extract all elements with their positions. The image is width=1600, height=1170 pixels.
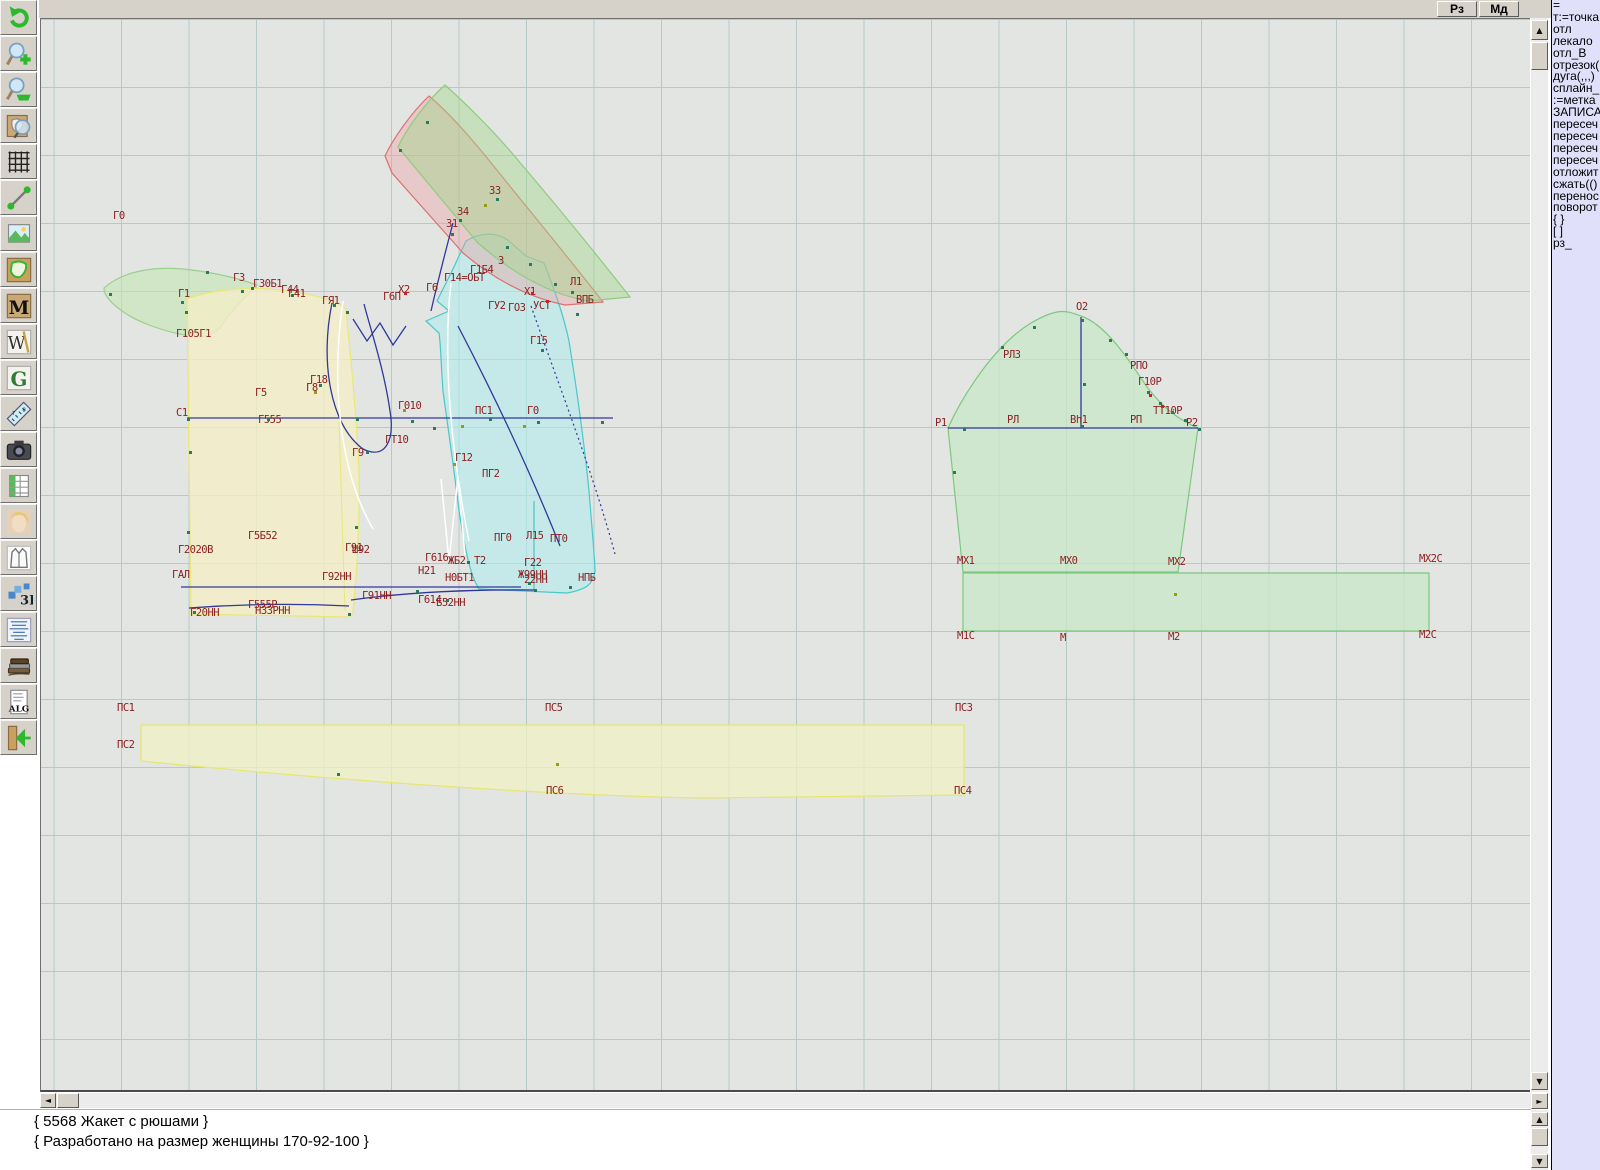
point-marker	[1198, 428, 1201, 431]
point-marker	[189, 451, 192, 454]
point-marker	[356, 418, 359, 421]
point-label: НЗЗРНН	[255, 605, 290, 617]
scroll-down-button[interactable]: ▼	[1531, 1072, 1548, 1090]
zoom-in-button[interactable]	[0, 36, 37, 71]
text-list-icon	[5, 616, 33, 644]
point-marker	[489, 418, 492, 421]
point-marker	[1149, 394, 1152, 397]
point-marker	[1171, 411, 1174, 414]
point-label: Т2	[474, 555, 486, 567]
point-label: ПГ0	[494, 532, 511, 544]
point-label: ГАЛ	[172, 569, 189, 581]
point-marker	[461, 425, 464, 428]
point-label: О2	[1076, 301, 1088, 313]
hscroll-thumb[interactable]	[57, 1093, 79, 1108]
portrait-button[interactable]	[0, 504, 37, 539]
camera-icon	[5, 436, 33, 464]
point-marker	[333, 304, 336, 307]
point-label: З3	[489, 185, 501, 197]
point-label: МХ1	[957, 555, 974, 567]
point-label: Г010	[398, 400, 421, 412]
point-marker	[433, 427, 436, 430]
mode-button-rz[interactable]: Рз	[1437, 1, 1477, 17]
undo-button[interactable]	[0, 0, 37, 35]
g-letter-icon: G	[5, 364, 33, 392]
point-label: Г30Б1	[253, 278, 282, 290]
point-marker	[601, 421, 604, 424]
svg-text:W: W	[7, 334, 25, 354]
point-marker	[319, 384, 322, 387]
point-marker	[554, 283, 557, 286]
point-marker	[953, 471, 956, 474]
point-label: Г0	[113, 210, 125, 222]
point-marker	[556, 763, 559, 766]
console-line: { Разработано на размер женщины 170-92-1…	[0, 1133, 1531, 1150]
zoom-out-button[interactable]	[0, 72, 37, 107]
point-marker	[1083, 383, 1086, 386]
point-label: Г1	[178, 288, 190, 300]
svg-text:3D: 3D	[20, 593, 33, 608]
point-marker	[267, 418, 270, 421]
m-letter-button[interactable]: M	[0, 288, 37, 323]
svg-text:G: G	[10, 367, 27, 391]
point-label: ПС5	[545, 702, 562, 714]
zoom-out-icon	[5, 76, 33, 104]
point-marker	[1109, 339, 1112, 342]
canvas-vscrollbar[interactable]: ▲ ▼	[1531, 18, 1548, 1092]
g-letter-button[interactable]: G	[0, 360, 37, 395]
console-scroll-up-button[interactable]: ▲	[1531, 1112, 1548, 1126]
point-label: Р2	[1186, 417, 1198, 429]
top-bar: Рз Мд	[39, 0, 1551, 18]
zoom-piece-button[interactable]	[0, 108, 37, 143]
image-button[interactable]	[0, 216, 37, 251]
point-label: Г6	[426, 282, 438, 294]
point-label: ПС4	[954, 785, 971, 797]
pattern-piece-button[interactable]	[0, 252, 37, 287]
point-marker	[523, 425, 526, 428]
point-label: ГУ2	[488, 300, 505, 312]
point-label: М1С	[957, 630, 974, 642]
point-label: МХ2	[1168, 556, 1185, 568]
point-label: Г5	[255, 387, 267, 399]
alg-doc-icon: ALG	[5, 688, 33, 716]
point-label: ЖБ2	[448, 555, 465, 567]
point-marker	[251, 287, 254, 290]
point-label: ПС1	[117, 702, 134, 714]
scroll-right-button[interactable]: ►	[1531, 1093, 1548, 1109]
toolbar: MWG783DALG	[0, 0, 39, 1170]
console-scrollbar[interactable]: ▲ ▼	[1531, 1110, 1548, 1170]
point-label: ПС3	[955, 702, 972, 714]
point-label: Г616	[425, 552, 448, 564]
point-label: ГО3	[508, 302, 525, 314]
point-marker	[459, 219, 462, 222]
drawing-canvas[interactable]: Г0Г1Г3Г30Б1Г44Г41ГЯ1Г105Г1Г18Г8Г5С1Г555З…	[40, 18, 1530, 1092]
point-marker	[528, 582, 531, 585]
point-label: Н0БТ1	[445, 572, 474, 584]
point-marker	[411, 420, 414, 423]
console-line: { 5568 Жакет с рюшами }	[0, 1113, 1531, 1130]
point-label: НПБ	[578, 572, 595, 584]
point-marker	[569, 586, 572, 589]
point-marker	[337, 773, 340, 776]
point-label: ПТ0	[550, 533, 567, 545]
console-scroll-down-button[interactable]: ▼	[1531, 1154, 1548, 1168]
point-label: Ш92	[352, 544, 369, 556]
point-marker	[355, 526, 358, 529]
point-label: МХ0	[1060, 555, 1077, 567]
point-label: Г91НН	[362, 590, 391, 602]
ruler-icon: 78	[5, 400, 33, 428]
point-label: М2С	[1419, 629, 1436, 641]
pattern-piece-icon	[5, 256, 33, 284]
point-marker	[314, 391, 317, 394]
point-label: РПО	[1130, 360, 1147, 372]
point-marker	[1161, 405, 1164, 408]
point-label: ГЯ1	[322, 295, 339, 307]
point-label: РЛЗ	[1003, 349, 1020, 361]
point-marker	[467, 561, 470, 564]
point-marker	[206, 271, 209, 274]
pattern-cad-window: MWG783DALG Рз Мд	[0, 0, 1600, 1170]
point-label: ГТ10	[385, 434, 408, 446]
point-marker	[366, 451, 369, 454]
spreadsheet-icon	[5, 472, 33, 500]
point-marker	[1184, 419, 1187, 422]
point-marker	[496, 198, 499, 201]
point-label: ПГ2	[482, 468, 499, 480]
program-console[interactable]: { 5568 Жакет с рюшами } { Разработано на…	[0, 1109, 1531, 1170]
svg-text:ALG: ALG	[7, 704, 28, 714]
console-scroll-thumb[interactable]	[1531, 1128, 1548, 1146]
undo-icon	[5, 4, 33, 32]
piece-front-bodice	[187, 288, 359, 617]
point-marker	[531, 292, 534, 295]
point-label: З1	[446, 218, 458, 230]
point-marker	[185, 311, 188, 314]
point-marker	[348, 613, 351, 616]
point-marker	[963, 428, 966, 431]
point-label: МХ2С	[1419, 553, 1442, 565]
point-marker	[193, 611, 196, 614]
point-marker	[1033, 326, 1036, 329]
ruler-button[interactable]: 78	[0, 396, 37, 431]
point-label: Н21	[418, 565, 435, 577]
point-label: С1	[176, 407, 188, 419]
point-label: ПС6	[546, 785, 563, 797]
command-list-item[interactable]: рз_	[1552, 238, 1600, 250]
point-marker	[453, 463, 456, 466]
point-label: Г9	[352, 447, 364, 459]
point-label: Л15	[526, 530, 543, 542]
exit-button[interactable]	[0, 720, 37, 755]
garment-sketch-button[interactable]	[0, 540, 37, 575]
alg-doc-button[interactable]: ALG	[0, 684, 37, 719]
image-icon	[5, 220, 33, 248]
point-marker	[571, 291, 574, 294]
portrait-icon	[5, 508, 33, 536]
point-label: ТТ10Р	[1153, 405, 1182, 417]
point-marker	[403, 409, 406, 412]
point-marker	[181, 301, 184, 304]
point-label: Г6П	[383, 291, 400, 303]
point-marker	[109, 293, 112, 296]
point-marker	[416, 590, 419, 593]
scroll-left-button[interactable]: ◄	[40, 1093, 56, 1108]
m-letter-icon: M	[5, 292, 33, 320]
mode-button-md[interactable]: Мд	[1479, 1, 1519, 17]
point-marker	[291, 294, 294, 297]
point-label: З4	[457, 206, 469, 218]
measure-line-button[interactable]	[0, 180, 37, 215]
point-label: Г5Б52	[248, 530, 277, 542]
point-marker	[1125, 353, 1128, 356]
command-panel[interactable]: =т:=точкаотллекалоотл_Вотрезок(дуга(,,,)…	[1551, 0, 1600, 1170]
text-list-button[interactable]	[0, 612, 37, 647]
point-label: Р1	[935, 417, 947, 429]
books-icon	[5, 652, 33, 680]
books-button[interactable]	[0, 648, 37, 683]
point-label: Вh1	[1070, 414, 1087, 426]
point-marker	[241, 290, 244, 293]
point-label: Г1Б4	[470, 264, 493, 276]
point-marker	[534, 589, 537, 592]
point-marker	[484, 204, 487, 207]
svg-text:8: 8	[22, 407, 25, 413]
point-marker	[426, 121, 429, 124]
point-marker	[541, 349, 544, 352]
point-label: Б52НН	[436, 597, 465, 609]
point-marker	[1174, 593, 1177, 596]
point-marker	[399, 149, 402, 152]
point-marker	[346, 311, 349, 314]
measure-line-icon	[5, 184, 33, 212]
spreadsheet-button[interactable]	[0, 468, 37, 503]
point-marker	[529, 263, 532, 266]
zoom-in-icon	[5, 40, 33, 68]
svg-text:7: 7	[12, 411, 15, 417]
threed-icon: 3D	[5, 580, 33, 608]
point-marker	[506, 246, 509, 249]
point-marker	[187, 418, 190, 421]
grid-button[interactable]	[0, 144, 37, 179]
piece-sleeve	[948, 312, 1198, 572]
point-label: Г22	[524, 557, 541, 569]
point-marker	[576, 313, 579, 316]
grid-icon	[5, 148, 33, 176]
point-label: Г2020В	[178, 544, 213, 556]
canvas-hscrollbar[interactable]: ◄	[40, 1093, 1531, 1108]
exit-icon	[5, 724, 33, 752]
point-marker	[404, 292, 407, 295]
point-label: М2	[1168, 631, 1180, 643]
scroll-up-button[interactable]: ▲	[1531, 20, 1548, 40]
point-label: ПС1	[475, 405, 492, 417]
point-label: Г0	[527, 405, 539, 417]
w-compass-button[interactable]: W	[0, 324, 37, 359]
point-label: Г15	[530, 335, 547, 347]
threed-button[interactable]: 3D	[0, 576, 37, 611]
point-label: Л1	[570, 276, 582, 288]
point-marker	[446, 599, 449, 602]
point-label: РП	[1130, 414, 1142, 426]
garment-sketch-icon	[5, 544, 33, 572]
point-label: М	[1060, 632, 1066, 644]
point-label: Г10Р	[1138, 376, 1161, 388]
point-label: Г3	[233, 272, 245, 284]
pattern-drawing	[41, 19, 1530, 1092]
camera-button[interactable]	[0, 432, 37, 467]
point-label: З	[498, 255, 504, 267]
vscroll-thumb[interactable]	[1531, 42, 1548, 70]
point-label: ВПБ	[576, 294, 593, 306]
point-label: Г12	[455, 452, 472, 464]
w-compass-icon: W	[5, 328, 33, 356]
point-label: РЛ	[1007, 414, 1019, 426]
point-marker	[187, 531, 190, 534]
point-label: ПС2	[117, 739, 134, 751]
zoom-piece-icon	[5, 112, 33, 140]
point-marker	[451, 233, 454, 236]
point-marker	[546, 300, 549, 303]
point-marker	[537, 421, 540, 424]
point-marker	[1001, 346, 1004, 349]
point-label: Г105Г1	[176, 328, 211, 340]
point-marker	[1081, 319, 1084, 322]
svg-text:M: M	[8, 297, 29, 319]
piece-belt-rect	[963, 573, 1429, 631]
point-label: Г92НН	[322, 571, 351, 583]
point-marker	[1081, 425, 1084, 428]
